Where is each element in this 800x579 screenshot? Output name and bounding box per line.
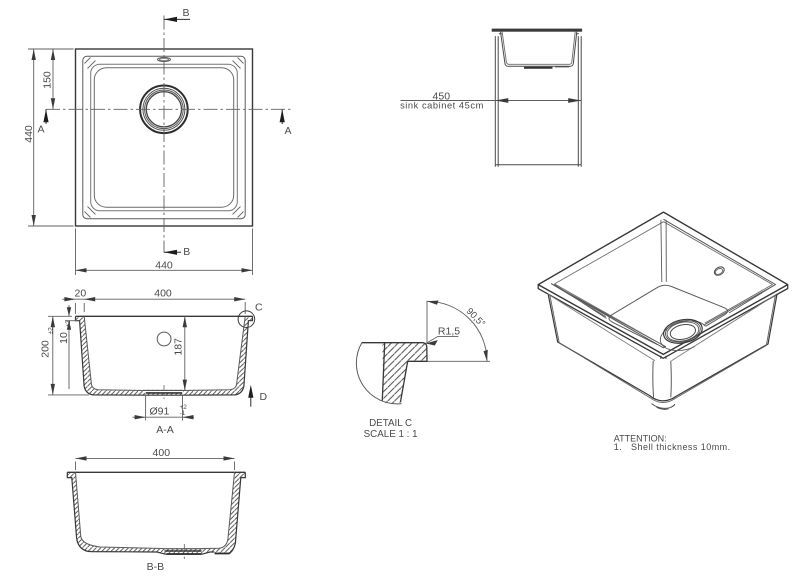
svg-text:A-A: A-A bbox=[156, 424, 174, 436]
svg-text:B-B: B-B bbox=[147, 561, 165, 573]
svg-text:A: A bbox=[285, 125, 292, 137]
svg-text:1. Shell thickness 10mm.: 1. Shell thickness 10mm. bbox=[614, 442, 731, 452]
svg-text:200: 200 bbox=[40, 340, 52, 358]
svg-text:440: 440 bbox=[155, 259, 173, 271]
svg-text:20: 20 bbox=[75, 288, 87, 300]
svg-text:10: 10 bbox=[58, 332, 70, 344]
svg-text:B: B bbox=[183, 7, 190, 19]
svg-text:Ø91: Ø91 bbox=[150, 406, 170, 418]
svg-text:440: 440 bbox=[23, 125, 35, 143]
svg-text:A: A bbox=[38, 124, 45, 136]
svg-text:R1,5: R1,5 bbox=[438, 325, 460, 337]
svg-text:150: 150 bbox=[42, 71, 54, 89]
svg-text:C: C bbox=[255, 302, 263, 314]
svg-text:SCALE 1 : 1: SCALE 1 : 1 bbox=[364, 429, 418, 440]
svg-text:-1: -1 bbox=[180, 410, 186, 417]
svg-text:187: 187 bbox=[173, 338, 185, 356]
svg-text:DETAIL C: DETAIL C bbox=[369, 418, 412, 429]
svg-text:B: B bbox=[183, 246, 190, 258]
svg-text:400: 400 bbox=[154, 288, 172, 300]
svg-text:D: D bbox=[260, 391, 268, 403]
svg-text:±2: ±2 bbox=[65, 320, 72, 328]
svg-text:400: 400 bbox=[153, 447, 171, 459]
svg-text:±2: ±2 bbox=[48, 327, 55, 335]
svg-text:sink cabinet 45cm: sink cabinet 45cm bbox=[400, 101, 484, 111]
